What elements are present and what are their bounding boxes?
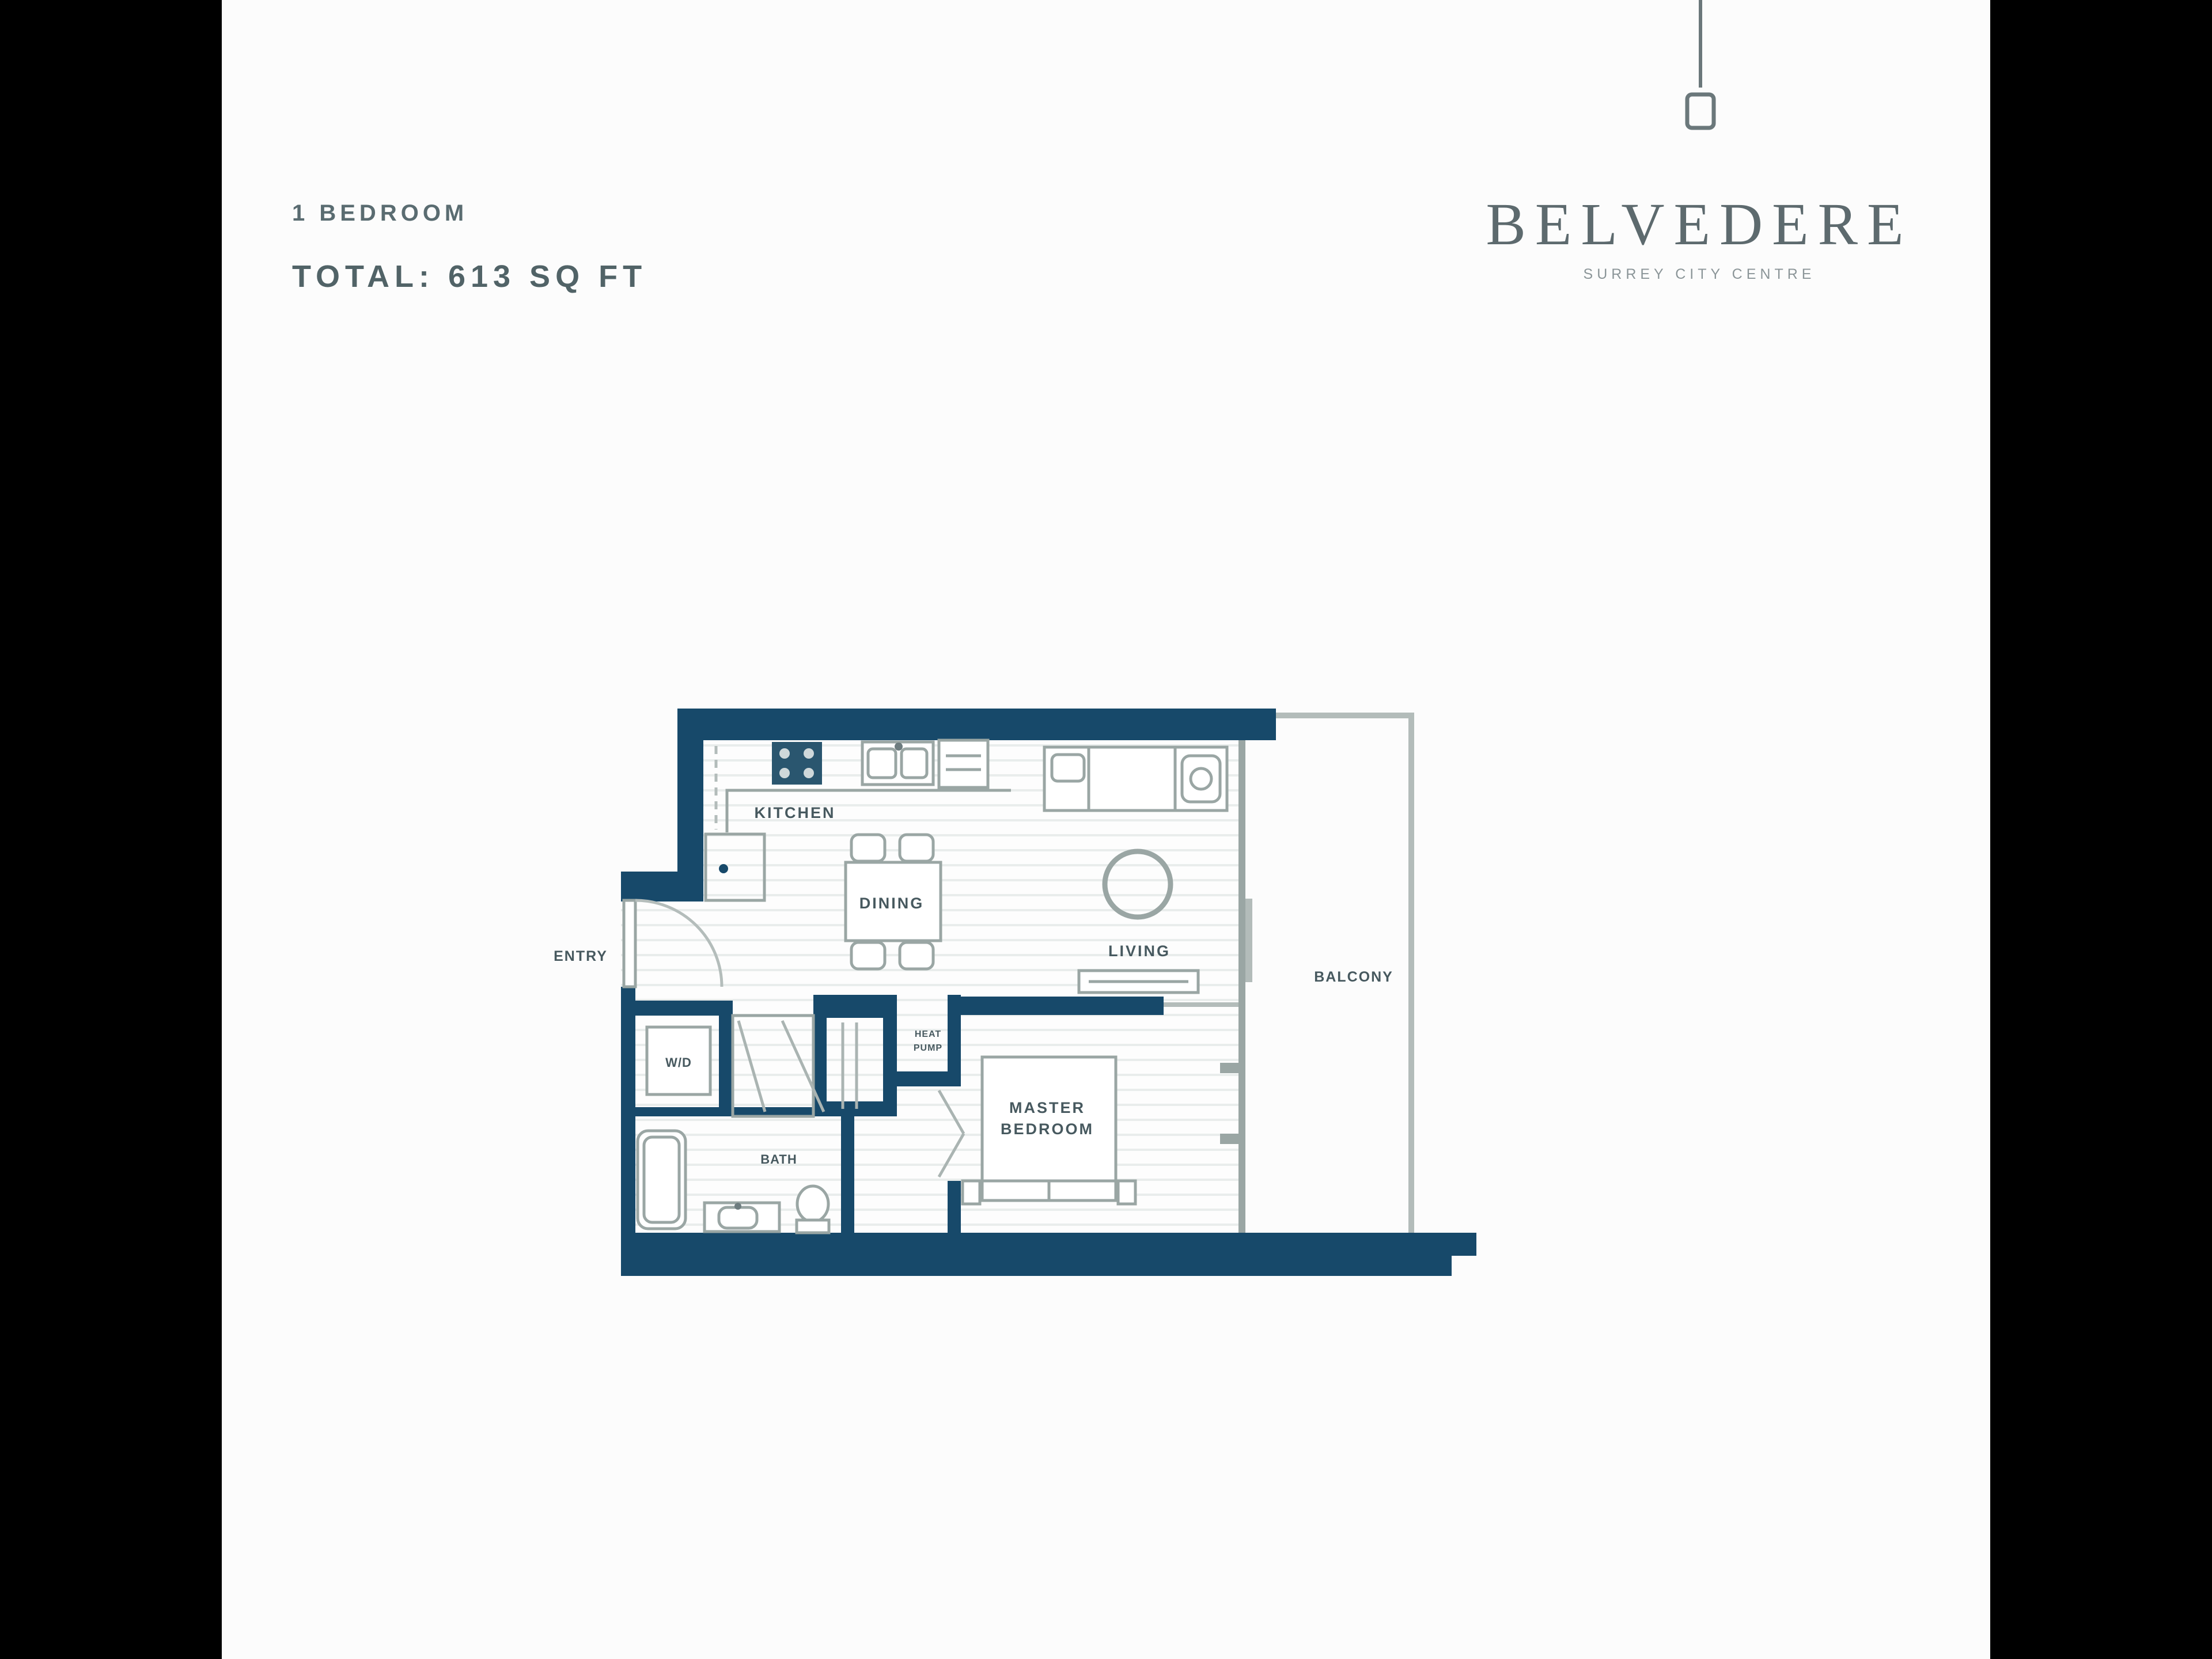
floorplan-drawing: KITCHEN DINING LIVING ENTRY W/D BATH MAS… <box>0 0 2212 1659</box>
window-mullion-2 <box>1220 1134 1245 1144</box>
range-cooktop <box>772 742 822 785</box>
wall-bottom <box>621 1233 1476 1276</box>
wall-hall-top <box>813 995 897 1018</box>
divider-thin-line <box>1164 1002 1238 1007</box>
wall-bedroom-left-lower <box>948 1181 961 1233</box>
floorplan-sheet: 1 BEDROOM TOTAL: 613 SQ FT BELVEDERE SUR… <box>0 0 2212 1659</box>
kitchen-label: KITCHEN <box>755 804 836 821</box>
living-label: LIVING <box>1108 942 1171 960</box>
fridge <box>939 740 988 787</box>
dining-label: DINING <box>859 895 925 912</box>
wall-living-bedroom-divider <box>961 997 1164 1015</box>
burner-2 <box>804 748 814 759</box>
wall-entry-step <box>621 872 703 902</box>
bed <box>982 1057 1116 1181</box>
balcony-label: BALCONY <box>1314 969 1393 985</box>
heat-pump-label-line1: HEAT <box>915 1029 941 1039</box>
washer-dryer-label: W/D <box>665 1055 692 1070</box>
sink-faucet <box>895 743 903 751</box>
wall-top <box>677 709 1276 740</box>
wall-wd-right <box>719 1016 733 1112</box>
wall-bedroom-left-upper <box>948 995 961 1086</box>
window-mullion-1 <box>1220 1063 1245 1073</box>
nightstand-right <box>1118 1181 1135 1204</box>
closet-knob <box>719 864 728 873</box>
toilet-tank <box>797 1220 829 1233</box>
entry-door-leaf <box>624 900 635 987</box>
toilet-bowl <box>797 1186 828 1222</box>
wall-wd-top <box>635 1001 733 1016</box>
burner-3 <box>779 768 790 778</box>
heat-pump-label-line2: PUMP <box>914 1043 942 1053</box>
balcony-edge-right <box>1408 713 1414 1233</box>
wall-bath-right <box>841 1116 854 1233</box>
master-bedroom-label-line2: BEDROOM <box>1001 1120 1094 1138</box>
vanity-faucet <box>734 1203 741 1210</box>
balcony-slider-door <box>1245 899 1252 982</box>
burner-1 <box>779 748 790 759</box>
dining-chair-4 <box>900 942 933 969</box>
nightstand-left <box>963 1181 980 1204</box>
wall-left-lower <box>621 987 635 1276</box>
dining-chair-2 <box>900 835 933 861</box>
wall-pocket-right <box>883 1018 897 1112</box>
dining-chair-1 <box>851 835 885 861</box>
dining-chair-3 <box>851 942 885 969</box>
balcony-edge-top <box>1276 713 1414 718</box>
master-bedroom-label-line1: MASTER <box>1009 1099 1085 1116</box>
bath-label: BATH <box>760 1152 797 1166</box>
wall-kitchen-left <box>677 740 703 872</box>
window-wall <box>1238 740 1245 1233</box>
entry-label: ENTRY <box>554 948 608 964</box>
burner-4 <box>804 768 814 778</box>
